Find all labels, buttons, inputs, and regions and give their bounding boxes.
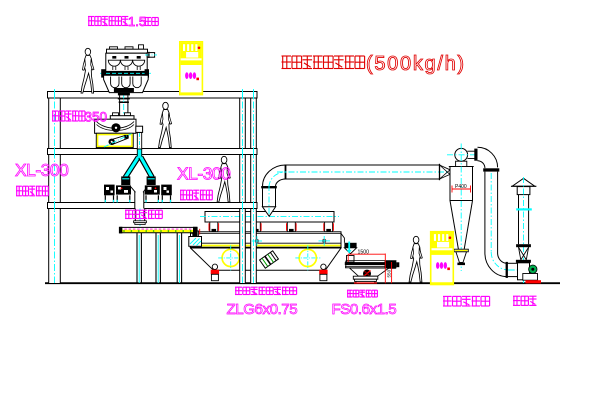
svg-text:350: 350 <box>85 110 108 125</box>
svg-text:XL-300: XL-300 <box>177 164 230 184</box>
svg-text:(500kg/h): (500kg/h) <box>366 53 466 75</box>
svg-text:550: 550 <box>387 269 392 277</box>
svg-text:ZLG6x0.75: ZLG6x0.75 <box>227 301 298 318</box>
svg-text:1.5: 1.5 <box>128 14 146 29</box>
svg-text:FS0.6x1.5: FS0.6x1.5 <box>332 301 397 318</box>
svg-text:P400: P400 <box>455 184 467 190</box>
svg-text:1500: 1500 <box>358 249 370 255</box>
svg-text:XL-300: XL-300 <box>15 160 68 180</box>
